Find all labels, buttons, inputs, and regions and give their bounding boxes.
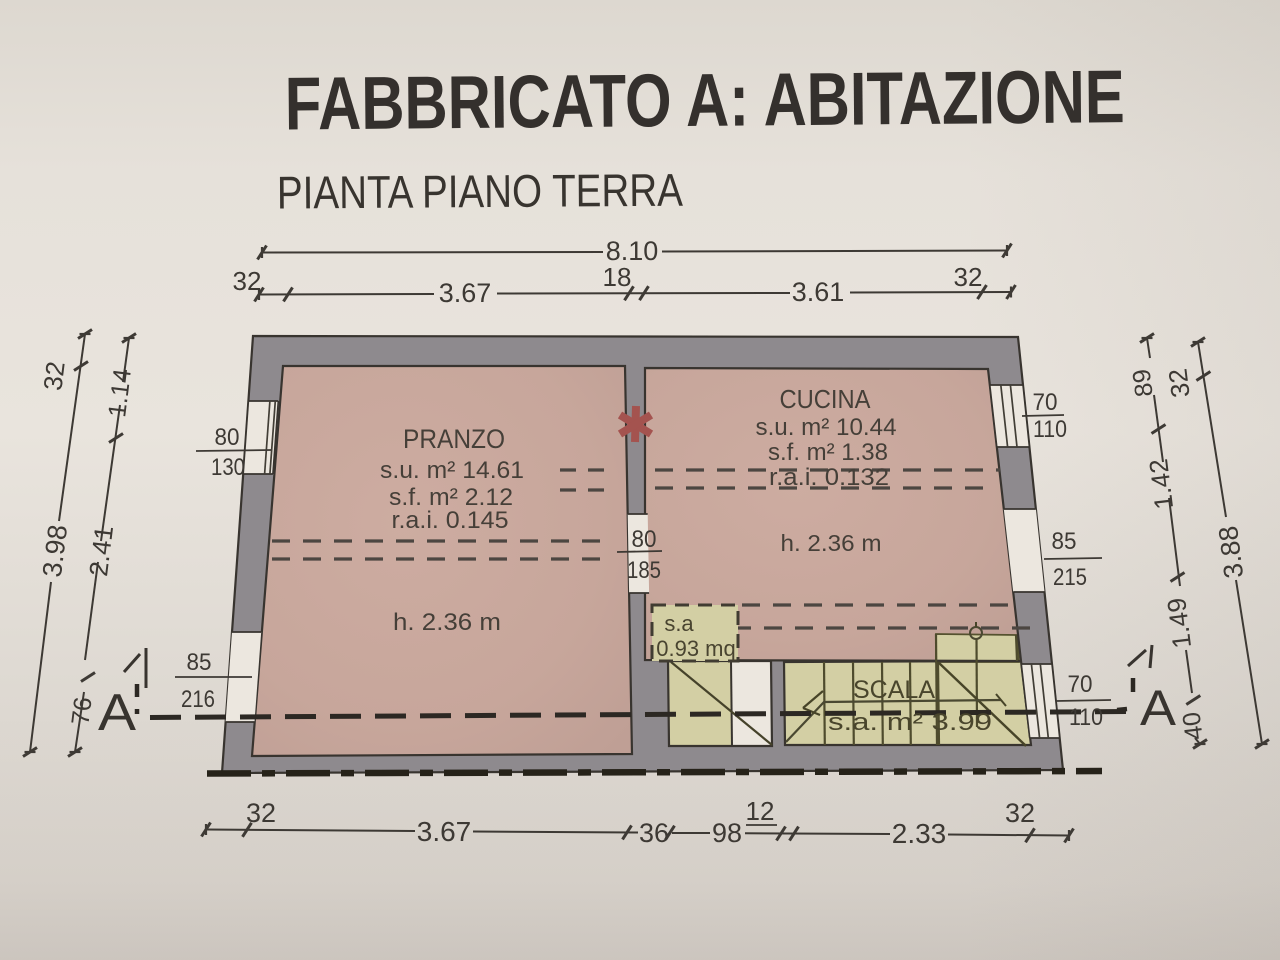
svg-text:3.67: 3.67 (417, 816, 472, 847)
svg-text:PIANTA PIANO TERRA: PIANTA PIANO TERRA (277, 164, 684, 219)
svg-text:2.41: 2.41 (83, 524, 119, 578)
svg-text:32: 32 (246, 798, 276, 828)
svg-text:85: 85 (1052, 528, 1077, 555)
svg-text:1.14: 1.14 (103, 367, 137, 419)
svg-text:1.42: 1.42 (1143, 457, 1179, 511)
svg-text:70: 70 (1068, 671, 1093, 698)
svg-text:A: A (98, 684, 136, 742)
svg-text:98: 98 (712, 818, 742, 848)
svg-text:130: 130 (211, 454, 245, 481)
svg-text:s.f. m² 1.38: s.f. m² 1.38 (768, 439, 888, 466)
svg-text:h. 2.36 m: h. 2.36 m (781, 530, 882, 556)
svg-text:s.u. m² 14.61: s.u. m² 14.61 (380, 457, 524, 484)
svg-text:r.a.i. 0.132: r.a.i. 0.132 (769, 464, 889, 491)
svg-text:40: 40 (1177, 710, 1208, 741)
svg-text:SCALA: SCALA (853, 676, 935, 704)
svg-text:h. 2.36 m: h. 2.36 m (393, 609, 501, 636)
svg-text:FABBRICATO A: ABITAZIONE: FABBRICATO A: ABITAZIONE (284, 54, 1125, 145)
svg-text:110: 110 (1033, 416, 1067, 443)
svg-text:A: A (1140, 680, 1177, 736)
svg-text:110: 110 (1069, 704, 1103, 731)
svg-text:80: 80 (632, 526, 657, 553)
svg-text:r.a.i. 0.145: r.a.i. 0.145 (392, 507, 509, 534)
svg-text:32: 32 (37, 360, 70, 392)
svg-text:2.33: 2.33 (892, 818, 947, 849)
svg-text:32: 32 (233, 266, 262, 296)
svg-text:32: 32 (954, 262, 983, 292)
svg-text:3.67: 3.67 (439, 278, 492, 308)
svg-text:76: 76 (66, 696, 97, 727)
svg-text:3.88: 3.88 (1213, 524, 1249, 580)
svg-text:CUCINA: CUCINA (780, 384, 872, 414)
svg-text:0.93 mq: 0.93 mq (656, 636, 736, 661)
svg-text:85: 85 (187, 649, 212, 676)
svg-text:70: 70 (1033, 389, 1058, 416)
svg-text:s.a. m² 3.99: s.a. m² 3.99 (828, 709, 992, 736)
svg-text:89: 89 (1127, 367, 1158, 398)
svg-text:32: 32 (1162, 367, 1195, 399)
svg-text:216: 216 (181, 686, 215, 713)
svg-text:s.u. m² 10.44: s.u. m² 10.44 (756, 414, 897, 441)
svg-text:s.a: s.a (664, 611, 694, 636)
svg-text:80: 80 (215, 424, 240, 451)
svg-text:3.98: 3.98 (37, 523, 73, 579)
svg-text:PRANZO: PRANZO (403, 424, 505, 454)
svg-text:32: 32 (1005, 798, 1035, 828)
svg-text:215: 215 (1053, 564, 1087, 591)
svg-text:1.49: 1.49 (1161, 596, 1197, 650)
svg-text:12: 12 (746, 796, 775, 826)
svg-text:36: 36 (639, 818, 669, 848)
svg-text:3.61: 3.61 (792, 277, 845, 307)
svg-text:18: 18 (603, 262, 632, 292)
svg-text:185: 185 (627, 557, 661, 584)
